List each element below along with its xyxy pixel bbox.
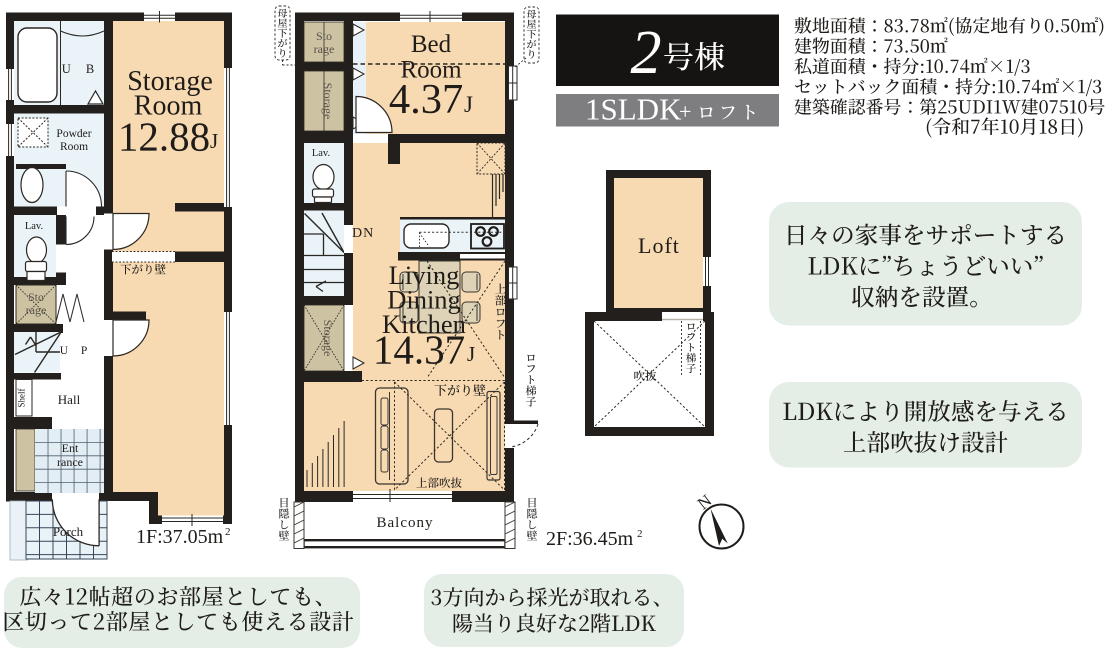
svg-text:12.88: 12.88 (118, 114, 210, 160)
svg-text:rage: rage (314, 42, 335, 56)
svg-text:Shelf: Shelf (17, 388, 27, 407)
svg-text:DN: DN (352, 226, 374, 241)
svg-text:J: J (467, 342, 475, 366)
svg-text:rance: rance (57, 455, 83, 469)
svg-text:Sto: Sto (28, 290, 44, 304)
svg-text:2: 2 (631, 19, 662, 87)
svg-text:J: J (210, 129, 218, 153)
svg-text:Porch: Porch (53, 524, 84, 539)
svg-text:Sto: Sto (316, 29, 332, 43)
svg-text:1F:37.05m: 1F:37.05m (136, 526, 224, 548)
svg-text:Hall: Hall (58, 392, 81, 407)
svg-text:+: + (679, 99, 691, 124)
svg-text:Room: Room (60, 141, 88, 153)
svg-text:Loft: Loft (638, 233, 680, 258)
svg-text:Bed: Bed (411, 31, 452, 58)
svg-text:2F:36.45m: 2F:36.45m (546, 528, 634, 550)
svg-text:Ent: Ent (62, 441, 79, 455)
svg-text:U B: U B (62, 62, 101, 76)
svg-text:Balcony: Balcony (377, 515, 434, 531)
svg-text:1SLDK: 1SLDK (585, 92, 682, 127)
svg-text:Powder: Powder (56, 128, 91, 140)
svg-text:J: J (464, 92, 473, 117)
svg-text:2: 2 (637, 528, 643, 540)
svg-text:14.37: 14.37 (373, 327, 465, 373)
svg-text:rage: rage (26, 303, 47, 317)
svg-text:U P: U P (60, 345, 93, 357)
svg-text:Storage: Storage (321, 320, 335, 357)
svg-text:2: 2 (225, 526, 231, 538)
svg-text:Lav.: Lav. (25, 221, 43, 232)
svg-text:4.37: 4.37 (389, 76, 463, 123)
svg-text:Lav.: Lav. (312, 148, 330, 159)
svg-text:Storage: Storage (321, 83, 335, 120)
